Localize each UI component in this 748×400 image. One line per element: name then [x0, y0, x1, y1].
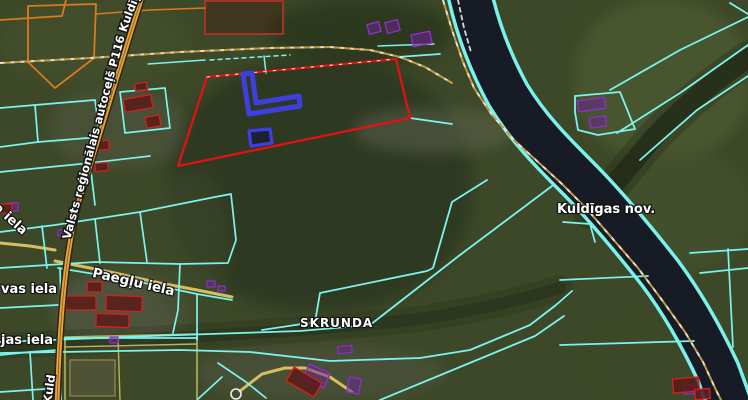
parcel-line [690, 249, 748, 253]
building-red [95, 162, 109, 171]
building-purple [207, 281, 215, 287]
parcel-line [0, 156, 150, 172]
building-red [96, 313, 129, 327]
building-purple [347, 377, 361, 394]
parcel-line [0, 105, 38, 147]
highlighted-building-small[interactable] [249, 129, 272, 146]
building-purple [218, 286, 225, 291]
building-purple [338, 345, 353, 353]
parcel-line [410, 118, 452, 124]
parcel-line [210, 55, 290, 60]
parcel-line [728, 249, 733, 347]
parcel-line [198, 377, 222, 399]
parcel-line [0, 305, 58, 308]
parcel-line [140, 212, 147, 262]
parcel-line [218, 363, 266, 398]
parcel-line [95, 219, 100, 263]
orange-parcel-line [96, 8, 205, 14]
orange-parcel-line [0, 0, 66, 20]
building-purple [589, 116, 606, 128]
parcel-line [0, 197, 215, 232]
highlighted-building-outline[interactable] [243, 73, 300, 114]
building-red [134, 82, 147, 92]
parcel-line [148, 60, 205, 64]
selected-parcel-red[interactable] [178, 59, 410, 166]
parcel-line [398, 54, 440, 57]
label-road-p116: Valsts reģionālais autoceļš P116 Kuldīga [0, 0, 144, 241]
surveyed-boundary-dash [207, 59, 396, 77]
parcel-line [700, 268, 748, 273]
map-canvas[interactable]: Valsts reģionālais autoceļš P116 Kuldīga… [0, 0, 748, 400]
parcel-line [560, 341, 694, 345]
street-road [0, 243, 55, 250]
parcel-line [0, 389, 45, 392]
parcel-line [30, 352, 33, 400]
building-red [695, 388, 711, 399]
building-purple [367, 22, 381, 35]
building-purple [385, 20, 400, 34]
river [470, 0, 730, 400]
point-symbol [231, 389, 241, 399]
label-kuldigas-nov: Kuldīgas nov. [557, 203, 655, 216]
parcel-line [730, 3, 748, 14]
building-red [123, 95, 153, 113]
parcel-line [563, 222, 595, 242]
label-skrunda: SKRUNDA [300, 317, 373, 330]
building-purple [577, 97, 605, 112]
map-svg: Valsts reģionālais autoceļš P116 Kuldīga… [0, 0, 748, 400]
building-red [66, 296, 96, 310]
parcel-line [180, 194, 236, 264]
khaki-pad [70, 360, 115, 396]
building-purple [110, 337, 118, 343]
label-vas-iela: vas iela [1, 283, 57, 296]
farmstead-parcel [575, 92, 635, 135]
building-red [106, 295, 143, 311]
label-jas-iela: jas iela [1, 334, 53, 347]
parcel-line [173, 264, 180, 333]
brown-parcel [205, 1, 283, 34]
building-red [87, 282, 102, 292]
building-red [145, 115, 161, 128]
